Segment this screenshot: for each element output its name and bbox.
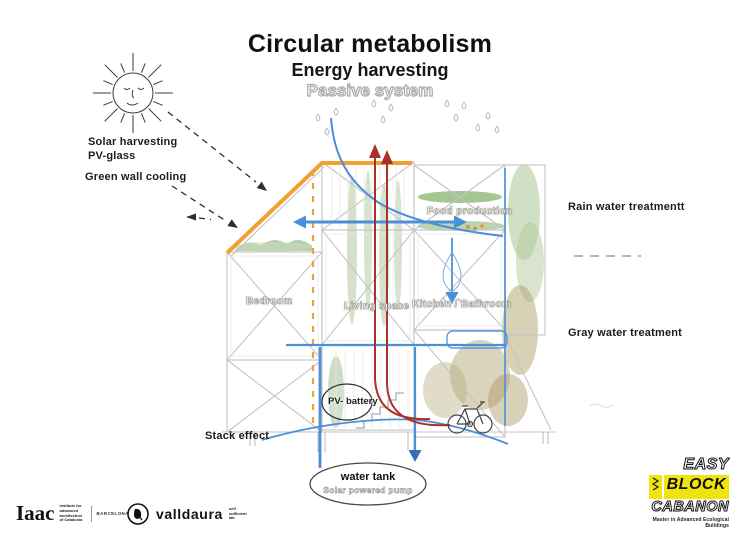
- label-stack-effect: Stack effect: [205, 429, 269, 443]
- iaac-logo: Iaac institute for advanced architecture…: [16, 503, 129, 524]
- valldaura-logo: valldaura self sufficient lab: [126, 502, 247, 526]
- faint-scribble: [590, 404, 613, 407]
- valldaura-stamp-icon: [126, 502, 150, 526]
- sun-ray-arrowheads: [186, 182, 267, 228]
- label-solar-harvesting: Solar harvesting PV-glass: [88, 135, 177, 164]
- page-subtitle-2: Passive system: [210, 81, 530, 101]
- label-food-production: Food production: [427, 206, 512, 217]
- logo-cabanon: CABANON: [645, 500, 729, 516]
- logo-tagline: Master in Advanced Ecological Buildings: [645, 517, 729, 529]
- valldaura-desc: self sufficient lab: [229, 507, 247, 521]
- label-kitchen-bathroom: Kitchen / Bathroom: [412, 299, 511, 310]
- water-tank-ellipse: [310, 463, 426, 505]
- label-pv-battery: PV- battery: [328, 396, 378, 407]
- logo-block: BLOCK: [664, 475, 729, 499]
- label-gray-water-treatment: Gray water treatment: [568, 326, 682, 340]
- label-bedroom: Bedroom: [246, 296, 293, 307]
- easy-block-cabanon-logo: EASY BLOCK CABANON Master in Advanced Ec…: [645, 457, 729, 529]
- logo-easy: EASY: [645, 457, 729, 474]
- divider: [91, 506, 92, 522]
- logo-block-row: BLOCK: [645, 475, 729, 499]
- iaac-desc: institute for advanced architecture of C…: [60, 504, 86, 523]
- rain-drops-icon: [316, 100, 499, 135]
- sun-ray-arrows: [168, 112, 256, 221]
- label-water-tank: water tank: [310, 471, 426, 483]
- label-rain-water-treatment: Rain water treatmentt: [568, 200, 685, 214]
- maeb-chip-icon: [649, 475, 662, 499]
- iaac-city: BARCELONA: [97, 511, 129, 516]
- page-title: Circular metabolism: [210, 30, 530, 59]
- poster: Circular metabolism Energy harvesting Pa…: [0, 0, 730, 548]
- sun-icon: [93, 53, 173, 133]
- label-living-space: Living space: [344, 301, 409, 312]
- label-solar-powered-pump: Solar powered pump: [310, 485, 426, 495]
- page-subtitle: Energy harvesting: [210, 60, 530, 81]
- valldaura-logo-text: valldaura: [156, 506, 223, 522]
- title-block: Circular metabolism Energy harvesting Pa…: [210, 30, 530, 101]
- label-green-wall-cooling: Green wall cooling: [85, 170, 186, 184]
- iaac-logo-text: Iaac: [16, 503, 55, 524]
